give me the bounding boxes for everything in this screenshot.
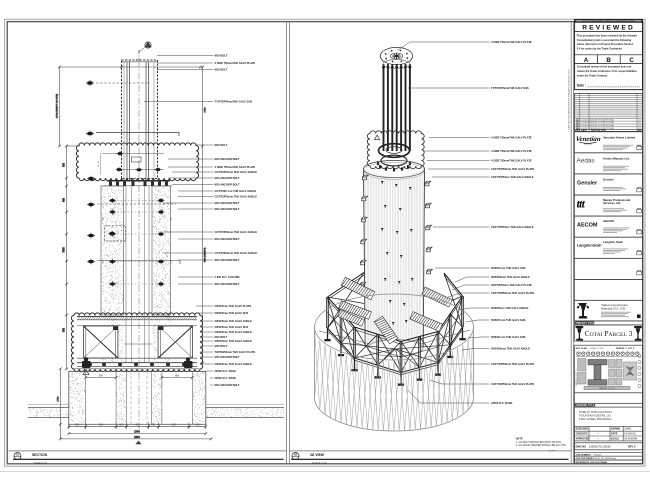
- svg-text:M10 ANCHOR BOLT: M10 ANCHOR BOLT: [215, 355, 240, 359]
- svg-text:4 SIDE 750mmTHK GALV PLATE: 4 SIDE 750mmTHK GALV PLATE: [215, 61, 256, 65]
- svg-text:ISSUED FOR APPROVAL: ISSUED FOR APPROVAL: [590, 121, 615, 124]
- svg-text:50/50/5 mm THK GALV SHS: 50/50/5 mm THK GALV SHS: [491, 266, 526, 270]
- svg-text:COT/TOP/50mm THK GALV PLATE: COT/TOP/50mm THK GALV PLATE: [491, 362, 535, 366]
- svg-text:4 SIDE 750mmTHK GALV PLATE: 4 SIDE 750mmTHK GALV PLATE: [491, 40, 532, 44]
- svg-text:2. ALL FILLET WELDED SHOULD BE: 2. ALL FILLET WELDED SHOULD BE 6mm THK.: [516, 444, 567, 447]
- svg-text:SCALE 1:10: SCALE 1:10: [312, 461, 327, 465]
- svg-text:ISSUED FOR APPROVAL: ISSUED FOR APPROVAL: [590, 118, 615, 121]
- svg-text:PARCEL 1, LOT 1: PARCEL 1, LOT 1: [575, 370, 578, 385]
- svg-text:M10 ANCHOR BOLT: M10 ANCHOR BOLT: [215, 157, 240, 161]
- svg-text:B: B: [606, 57, 611, 64]
- svg-text:864: 864: [99, 424, 104, 427]
- svg-text:1798: 1798: [205, 107, 207, 113]
- svg-text:TYP/TOP/6mmTHK GALV SHS: TYP/TOP/6mmTHK GALV SHS: [491, 86, 529, 90]
- svg-text:1764: 1764: [57, 396, 59, 402]
- svg-text:50/50/5 mm THK GALV SHS: 50/50/5 mm THK GALV SHS: [491, 335, 526, 339]
- svg-text:50/50/5mm THK GALV ANGLE: 50/50/5mm THK GALV ANGLE: [215, 339, 253, 343]
- svg-text:LangdonSeah: LangdonSeah: [577, 244, 602, 248]
- svg-text:KEY PLAN: KEY PLAN: [576, 347, 587, 350]
- svg-text:DATE: DATE: [611, 433, 618, 436]
- svg-text:status referred to in Project: status referred to in Project Procedure …: [577, 42, 634, 46]
- svg-text:SCALE 1:5: SCALE 1:5: [34, 461, 47, 465]
- svg-text:5.4 for action by the Trade Co: 5.4 for action by the Trade Contractor.: [577, 47, 623, 51]
- svg-text:4:05 PM: 4:05 PM: [548, 451, 555, 453]
- svg-text:450: 450: [135, 424, 140, 427]
- svg-text:50 500: 50 500: [98, 160, 100, 167]
- svg-text:COT/TOP/50mm THK GALV PLATE: COT/TOP/50mm THK GALV PLATE: [491, 167, 535, 171]
- svg-text:2764: 2764: [134, 431, 140, 434]
- svg-text:--: --: [597, 437, 599, 440]
- svg-text:2864: 2864: [134, 436, 140, 439]
- svg-text:M10 ANCHOR BOLT: M10 ANCHOR BOLT: [215, 176, 240, 180]
- svg-text:50/50/5mm THK GALV ANGLE: 50/50/5mm THK GALV ANGLE: [215, 362, 253, 366]
- svg-text:TOP/50/50mm THK GALV PLATE: TOP/50/50mm THK GALV PLATE: [215, 350, 256, 354]
- svg-text:SCALE 1:7500: SCALE 1:7500: [590, 347, 604, 350]
- svg-text:Consultants(s) and is accorded: Consultants(s) and is accorded the follo…: [577, 38, 632, 42]
- svg-text:02: 02: [294, 453, 297, 457]
- svg-text:AECOM: AECOM: [603, 219, 614, 223]
- svg-text:Venetian Orient Limited: Venetian Orient Limited: [603, 135, 636, 139]
- svg-text:01: 01: [16, 453, 19, 457]
- svg-text:AECOM: AECOM: [577, 222, 598, 228]
- svg-text:#2500 R.C. BASE: #2500 R.C. BASE: [215, 369, 237, 373]
- svg-text:4 SIDE 750mmTHK GALV PLATE: 4 SIDE 750mmTHK GALV PLATE: [491, 158, 532, 162]
- svg-text:CHAO: CHAO: [624, 428, 631, 431]
- svg-text:Date :: Date :: [577, 84, 586, 88]
- svg-text:M10 ANCHOR BOLT: M10 ANCHOR BOLT: [215, 182, 240, 186]
- svg-text:Gensler: Gensler: [603, 177, 615, 181]
- svg-text:Aedas: Aedas: [577, 157, 595, 164]
- svg-text:864: 864: [175, 374, 180, 377]
- svg-text:M10 ANCHOR BOLT: M10 ANCHOR BOLT: [215, 258, 240, 262]
- svg-text:Services Ltd.: Services Ltd.: [603, 201, 621, 205]
- svg-text:PARCEL 1 LOT 3: PARCEL 1 LOT 3: [599, 387, 615, 390]
- svg-text:DESIGNED: DESIGNED: [576, 428, 589, 431]
- svg-text:relieve the Trade Contractor o: relieve the Trade Contractor of its resp…: [577, 69, 638, 73]
- svg-text:14-JUN-15: 14-JUN-15: [624, 433, 636, 436]
- svg-text:COT/TOP/5mm THK GALV ANGLE: COT/TOP/5mm THK GALV ANGLE: [491, 225, 534, 229]
- svg-text:#2500 R.C. BASE: #2500 R.C. BASE: [215, 376, 237, 380]
- svg-text:DRAWING TITLE:: DRAWING TITLE:: [576, 404, 595, 407]
- svg-text:COT/TOP/50mm THK GALV PLATE: COT/TOP/50mm THK GALV PLATE: [491, 291, 535, 295]
- svg-text:PARCEL 1, LOT 2: PARCEL 1, LOT 2: [616, 347, 635, 350]
- svg-text:800: 800: [151, 424, 156, 427]
- svg-text:1. ALL BOLT SHOULD BE FIXING O: 1. ALL BOLT SHOULD BE FIXING ON SITE.: [516, 441, 562, 444]
- svg-text:800: 800: [195, 424, 200, 427]
- svg-text:REFERENCE CAD FILE NAME:: REFERENCE CAD FILE NAME:: [576, 461, 608, 464]
- svg-text:Venetian: Venetian: [575, 136, 601, 143]
- svg-text:800: 800: [119, 424, 124, 427]
- svg-text:COT/TOP/5mm THK GALV ANGLE: COT/TOP/5mm THK GALV ANGLE: [491, 175, 534, 179]
- svg-text:M10 BOLT: M10 BOLT: [215, 143, 228, 147]
- svg-text:COT/TOP/3mm THK GALV ANGLE: COT/TOP/3mm THK GALV ANGLE: [215, 251, 258, 255]
- svg-text:M10 BOLT: M10 BOLT: [215, 344, 228, 348]
- svg-text:under the Trade Contract.: under the Trade Contract.: [577, 73, 608, 77]
- svg-text:This document has been reviewe: This document has been reviewed by the r…: [577, 33, 637, 37]
- svg-text:M10 ANCHOR BOLT: M10 ANCHOR BOLT: [215, 282, 240, 286]
- svg-text:50/50/5mm THK GALV ANGLE: 50/50/5mm THK GALV ANGLE: [215, 330, 253, 334]
- svg-text:FOR STEEL DRAWING: FOR STEEL DRAWING: [579, 417, 612, 421]
- svg-text:M A C A O: M A C A O: [584, 143, 593, 146]
- svg-text:C:\PROJECTS\515UB\PD\515UB_PD_: C:\PROJECTS\515UB\PD\515UB_PD_85090.DWG …: [568, 70, 570, 130]
- svg-text:M10 ANCHOR BOLT: M10 ANCHOR BOLT: [215, 207, 240, 211]
- svg-text:ISSUED FOR APPROVAL: ISSUED FOR APPROVAL: [590, 124, 615, 127]
- svg-text:50/50/50mm THK GALV ANGLE: 50/50/50mm THK GALV ANGLE: [491, 275, 530, 279]
- svg-text:--: --: [597, 433, 599, 436]
- svg-text:50/50/5mm THK GALV SHS: 50/50/5mm THK GALV SHS: [215, 311, 249, 315]
- svg-text:50/50/50mm THK GALV ANGLE: 50/50/50mm THK GALV ANGLE: [491, 346, 530, 350]
- svg-text:M10 BOLT: M10 BOLT: [215, 53, 228, 57]
- svg-text:50/50/5mm THK GALV ANGLE: 50/50/5mm THK GALV ANGLE: [215, 319, 253, 323]
- svg-text:7585: 7585: [63, 247, 66, 253]
- svg-text:REVIEWED: REVIEWED: [582, 24, 635, 31]
- svg-text:A: A: [584, 57, 589, 64]
- svg-text:864: 864: [99, 374, 104, 377]
- svg-text:(Macau) CO. LTD.: (Macau) CO. LTD.: [601, 307, 626, 311]
- svg-text:Gensler: Gensler: [577, 180, 598, 186]
- svg-text:M10 BOLT: M10 BOLT: [215, 68, 228, 72]
- svg-text:1798 (VERIFY ON SITE): 1798 (VERIFY ON SITE): [57, 94, 59, 118]
- svg-text:500: 500: [63, 197, 66, 202]
- svg-text:AS SHOWN: AS SHOWN: [624, 437, 637, 440]
- svg-text:COT/TOP/ mm THK GALV ANGLE: COT/TOP/ mm THK GALV ANGLE: [215, 189, 257, 193]
- svg-text:3D VIEW: 3D VIEW: [310, 453, 325, 457]
- svg-text:DWG NO: DWG NO: [576, 446, 587, 449]
- svg-text:COT/TOP/3mm THK GALV ANGLE: COT/TOP/3mm THK GALV ANGLE: [215, 230, 258, 234]
- svg-text:M10 ANCHOR BOLT: M10 ANCHOR BOLT: [215, 383, 240, 387]
- svg-text:Aedas (Macau) Ltd.: Aedas (Macau) Ltd.: [603, 156, 630, 160]
- svg-text:DO NOT SCALE DRAWING. VERIFY A: DO NOT SCALE DRAWING. VERIFY ALL DIMENSI…: [582, 20, 636, 23]
- svg-text:SCALE: SCALE: [611, 437, 620, 440]
- svg-text:50/50/5 mm THK GALV SHS: 50/50/5 mm THK GALV SHS: [491, 318, 526, 322]
- svg-text:SECTION: SECTION: [32, 453, 48, 457]
- svg-text:M10 BOLT: M10 BOLT: [215, 335, 228, 339]
- svg-text:4 SIDE 750mmTHK GALV PLATE: 4 SIDE 750mmTHK GALV PLATE: [491, 135, 532, 139]
- svg-text:C: C: [629, 57, 634, 64]
- svg-text:TYP/TOP/6mmTHK GALV SHS: TYP/TOP/6mmTHK GALV SHS: [215, 99, 253, 103]
- svg-text:COT/TOP/3mm THK GALV ANGLE: COT/TOP/3mm THK GALV ANGLE: [215, 170, 258, 174]
- svg-text:300: 300: [63, 162, 66, 167]
- svg-text:CHECKED: CHECKED: [576, 433, 588, 436]
- svg-text:COT/TOP/3mm THK GALV ANGLE: COT/TOP/3mm THK GALV ANGLE: [215, 194, 258, 198]
- svg-text:COT/TOP/50mm THK GALV PLATE: COT/TOP/50mm THK GALV PLATE: [491, 382, 535, 386]
- svg-text:Consultant review of this docu: Consultant review of this document does …: [577, 65, 632, 69]
- svg-text:Langdon Seah: Langdon Seah: [603, 240, 623, 244]
- svg-text:50/50/5mm THK GALV PLATE: 50/50/5mm THK GALV PLATE: [215, 304, 252, 308]
- svg-text:M10 ANCHOR BOLT: M10 ANCHOR BOLT: [215, 201, 240, 205]
- svg-text:M10 ANCHOR BOLT: M10 ANCHOR BOLT: [215, 237, 240, 241]
- svg-text:DRAWN: DRAWN: [611, 428, 620, 431]
- svg-text:50/50/5mm THK GALV SHS: 50/50/5mm THK GALV SHS: [215, 325, 249, 329]
- svg-text:4 SIDE 750mmTHK GALV PLATE: 4 SIDE 750mmTHK GALV PLATE: [215, 165, 256, 169]
- svg-text:APPROVED: APPROVED: [576, 437, 590, 440]
- svg-text:REV C: REV C: [628, 446, 636, 449]
- svg-text:500: 500: [63, 327, 66, 332]
- svg-text:800: 800: [75, 424, 80, 427]
- svg-text:50/50/5mm THK GALV ANGLE: 50/50/5mm THK GALV ANGLE: [491, 306, 529, 310]
- svg-text:# 800 R.C. COLUMN: # 800 R.C. COLUMN: [215, 275, 240, 279]
- svg-text:#2500 R.C. BASE: #2500 R.C. BASE: [491, 401, 513, 405]
- svg-text:865: 865: [172, 424, 177, 427]
- svg-text:HOT/50/50mm THK GALV PLATE: HOT/50/50mm THK GALV PLATE: [491, 283, 532, 287]
- svg-text:NOTE:: NOTE:: [516, 439, 523, 441]
- svg-text:4 SIDE 750mmTHK GALV PLATE: 4 SIDE 750mmTHK GALV PLATE: [491, 149, 532, 153]
- svg-text:515UB_PD_85090: 515UB_PD_85090: [589, 445, 611, 449]
